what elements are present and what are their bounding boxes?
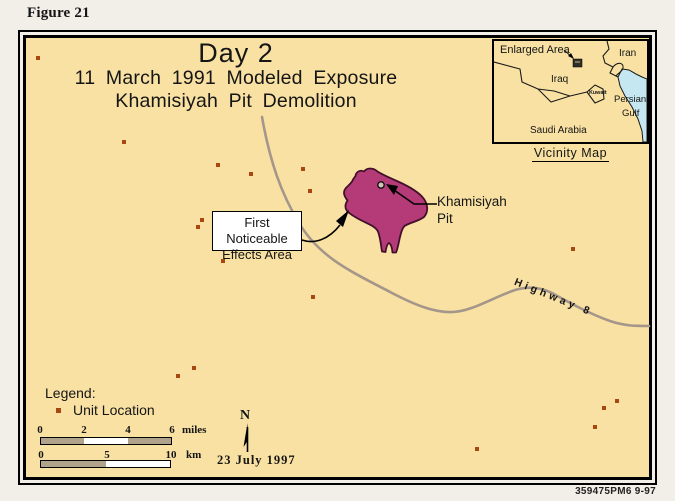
unit-location-marker bbox=[311, 295, 315, 299]
effects-area-label-line2: Effects Area bbox=[213, 247, 301, 263]
unit-location-marker bbox=[196, 225, 200, 229]
unit-location-marker bbox=[602, 406, 606, 410]
vicinity-gulf-label: Gulf bbox=[622, 108, 639, 119]
vicinity-iraq-label: Iraq bbox=[551, 74, 568, 85]
date-label: 23 July 1997 bbox=[217, 453, 296, 468]
km-unit-label: km bbox=[186, 449, 201, 461]
unit-location-marker bbox=[301, 167, 305, 171]
title-subject-line: Khamisiyah Pit Demolition bbox=[30, 90, 442, 113]
vicinity-map-title-text: Vicinity Map bbox=[532, 146, 609, 162]
unit-location-marker bbox=[200, 218, 204, 222]
miles-tick-0: 0 bbox=[33, 424, 47, 436]
miles-tick-6: 6 bbox=[165, 424, 179, 436]
figure-label: Figure 21 bbox=[27, 5, 90, 22]
unit-location-marker bbox=[176, 374, 180, 378]
km-seg-2 bbox=[106, 461, 170, 467]
pit-label: Khamisiyah Pit bbox=[437, 193, 507, 227]
km-seg-1 bbox=[41, 461, 106, 467]
enlarged-area-marker bbox=[573, 59, 582, 67]
vicinity-persian-label: Persian bbox=[614, 94, 646, 105]
unit-location-marker bbox=[475, 447, 479, 451]
effects-area-callout: First Noticeable Effects Area bbox=[212, 211, 302, 251]
unit-location-swatch bbox=[56, 408, 61, 413]
vicinity-enlarged-area-label: Enlarged Area bbox=[500, 44, 570, 56]
pit-label-line1: Khamisiyah bbox=[437, 193, 507, 210]
map-title: Day 2 11 March 1991 Modeled Exposure Kha… bbox=[30, 40, 442, 113]
vicinity-map-inset: Enlarged Area Iran Iraq Kuwait Persian G… bbox=[492, 39, 649, 144]
miles-tick-4: 4 bbox=[121, 424, 135, 436]
vicinity-iran-label: Iran bbox=[619, 48, 636, 59]
iran-iraq-border bbox=[603, 41, 618, 77]
vicinity-map-title: Vicinity Map bbox=[492, 146, 649, 160]
unit-location-marker bbox=[593, 425, 597, 429]
unit-location-marker bbox=[615, 399, 619, 403]
unit-location-marker bbox=[216, 163, 220, 167]
miles-tick-2: 2 bbox=[77, 424, 91, 436]
vicinity-kuwait-label: Kuwait bbox=[589, 90, 607, 95]
neutral-zone-border bbox=[538, 89, 570, 102]
legend-heading: Legend: bbox=[45, 385, 96, 401]
footer-code: 359475PM6 9-97 bbox=[575, 486, 656, 497]
miles-seg-2 bbox=[84, 438, 127, 444]
unit-location-marker bbox=[192, 366, 196, 370]
unit-location-marker bbox=[249, 172, 253, 176]
pit-label-line2: Pit bbox=[437, 210, 507, 227]
unit-location-marker bbox=[308, 189, 312, 193]
miles-seg-1 bbox=[41, 438, 84, 444]
miles-unit-label: miles bbox=[182, 424, 206, 436]
title-date-line: 11 March 1991 Modeled Exposure bbox=[30, 67, 442, 90]
iraq-saudi-border bbox=[494, 62, 538, 89]
title-day: Day 2 bbox=[30, 40, 442, 67]
miles-seg-3 bbox=[128, 438, 171, 444]
north-label: N bbox=[240, 408, 250, 424]
unit-location-marker bbox=[122, 140, 126, 144]
km-scalebar bbox=[40, 460, 171, 468]
persian-gulf-shape bbox=[618, 69, 647, 142]
miles-scalebar bbox=[40, 437, 172, 445]
unit-location-marker bbox=[571, 247, 575, 251]
legend-item-label: Unit Location bbox=[73, 402, 155, 418]
vicinity-saudi-arabia-label: Saudi Arabia bbox=[530, 125, 587, 136]
effects-area-label-line1: First Noticeable bbox=[213, 215, 301, 247]
